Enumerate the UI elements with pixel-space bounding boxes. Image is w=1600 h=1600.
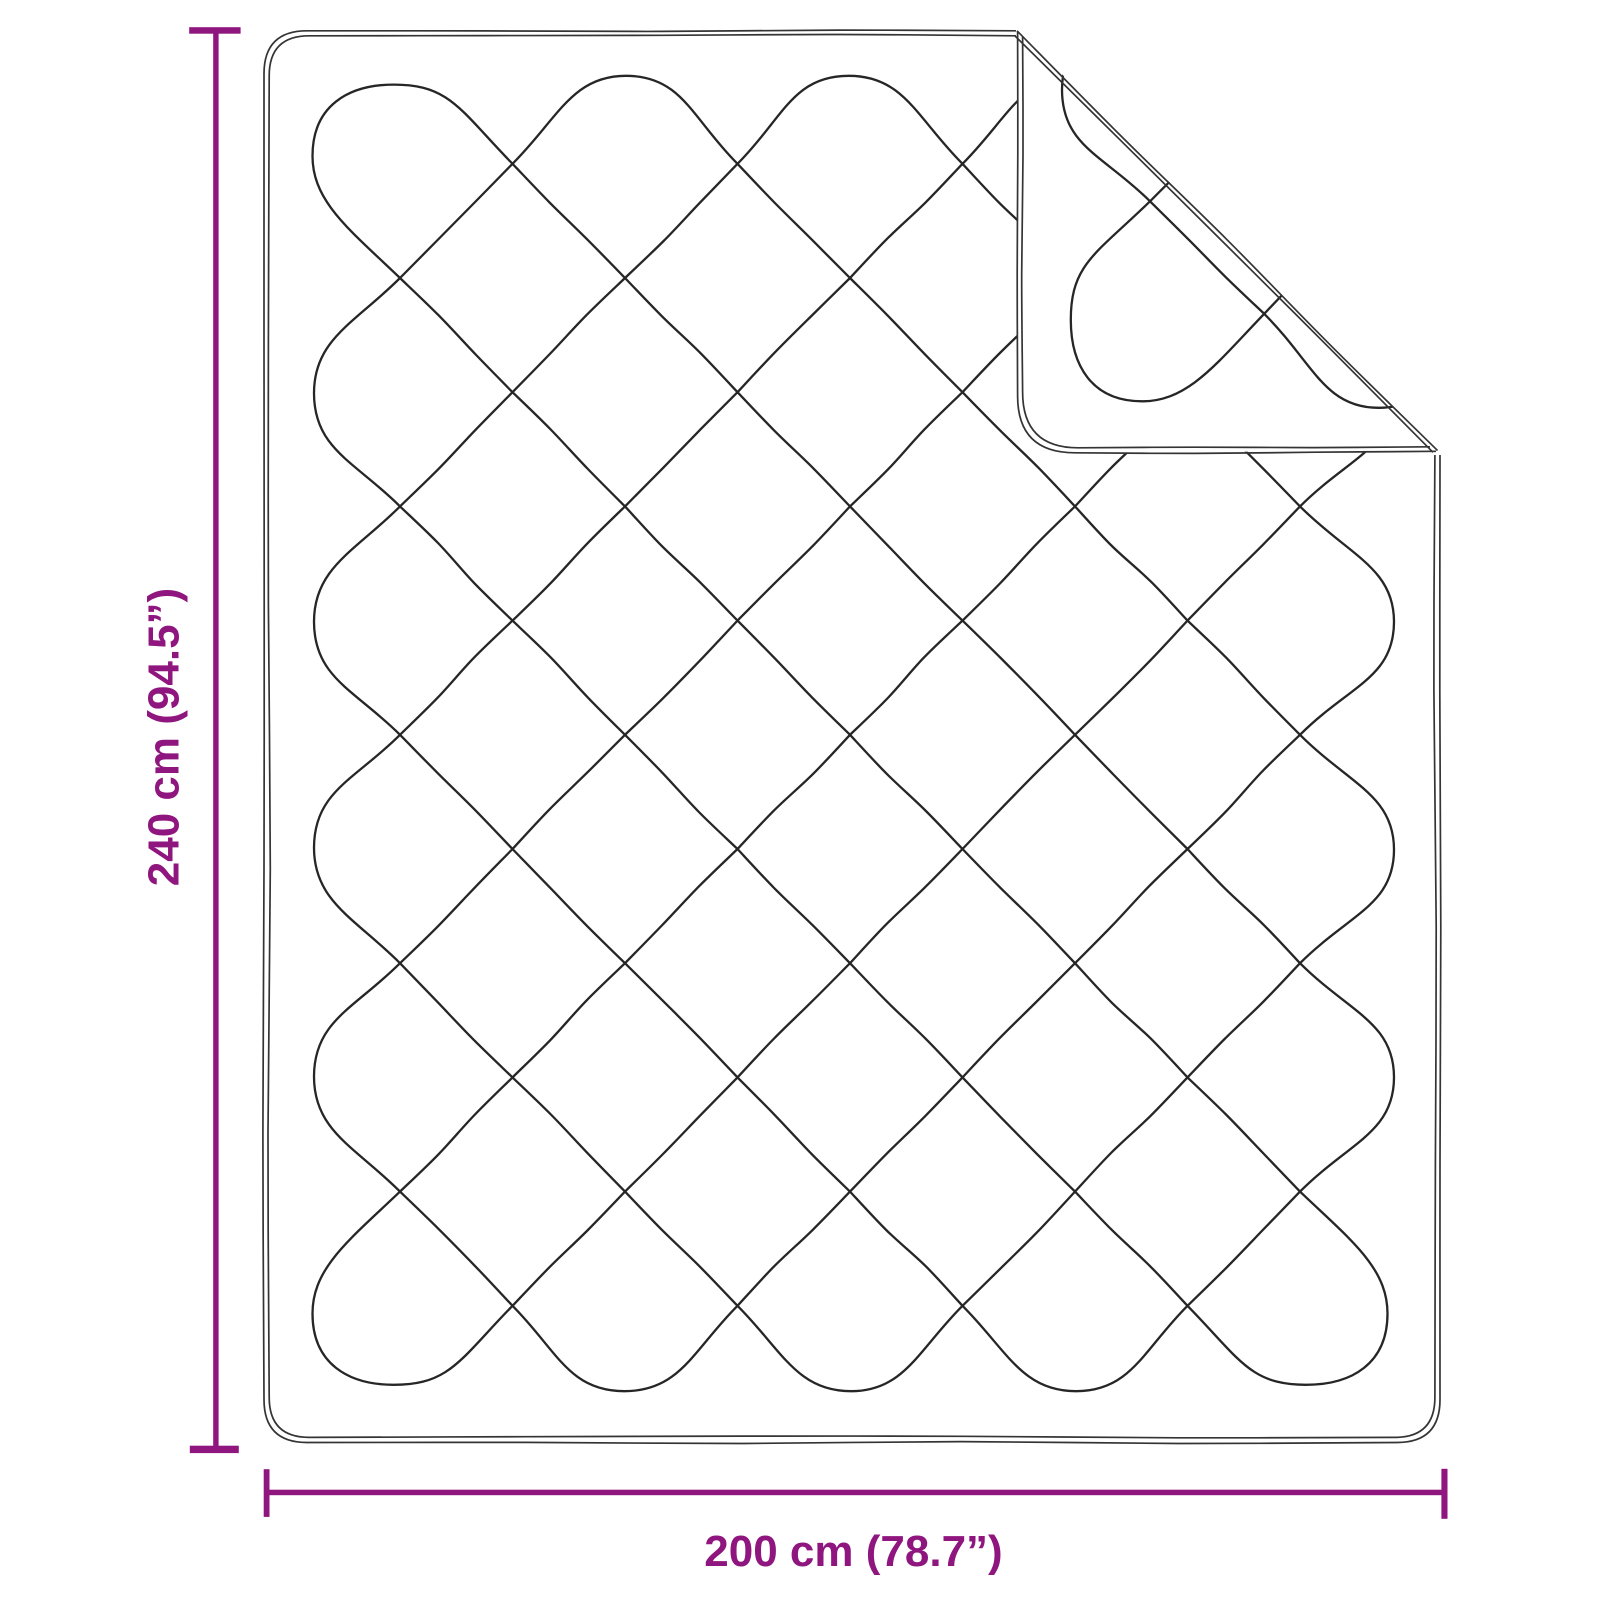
svg-text:200 cm (78.7”): 200 cm (78.7”): [704, 1527, 1002, 1576]
svg-text:240 cm (94.5”): 240 cm (94.5”): [140, 588, 189, 886]
